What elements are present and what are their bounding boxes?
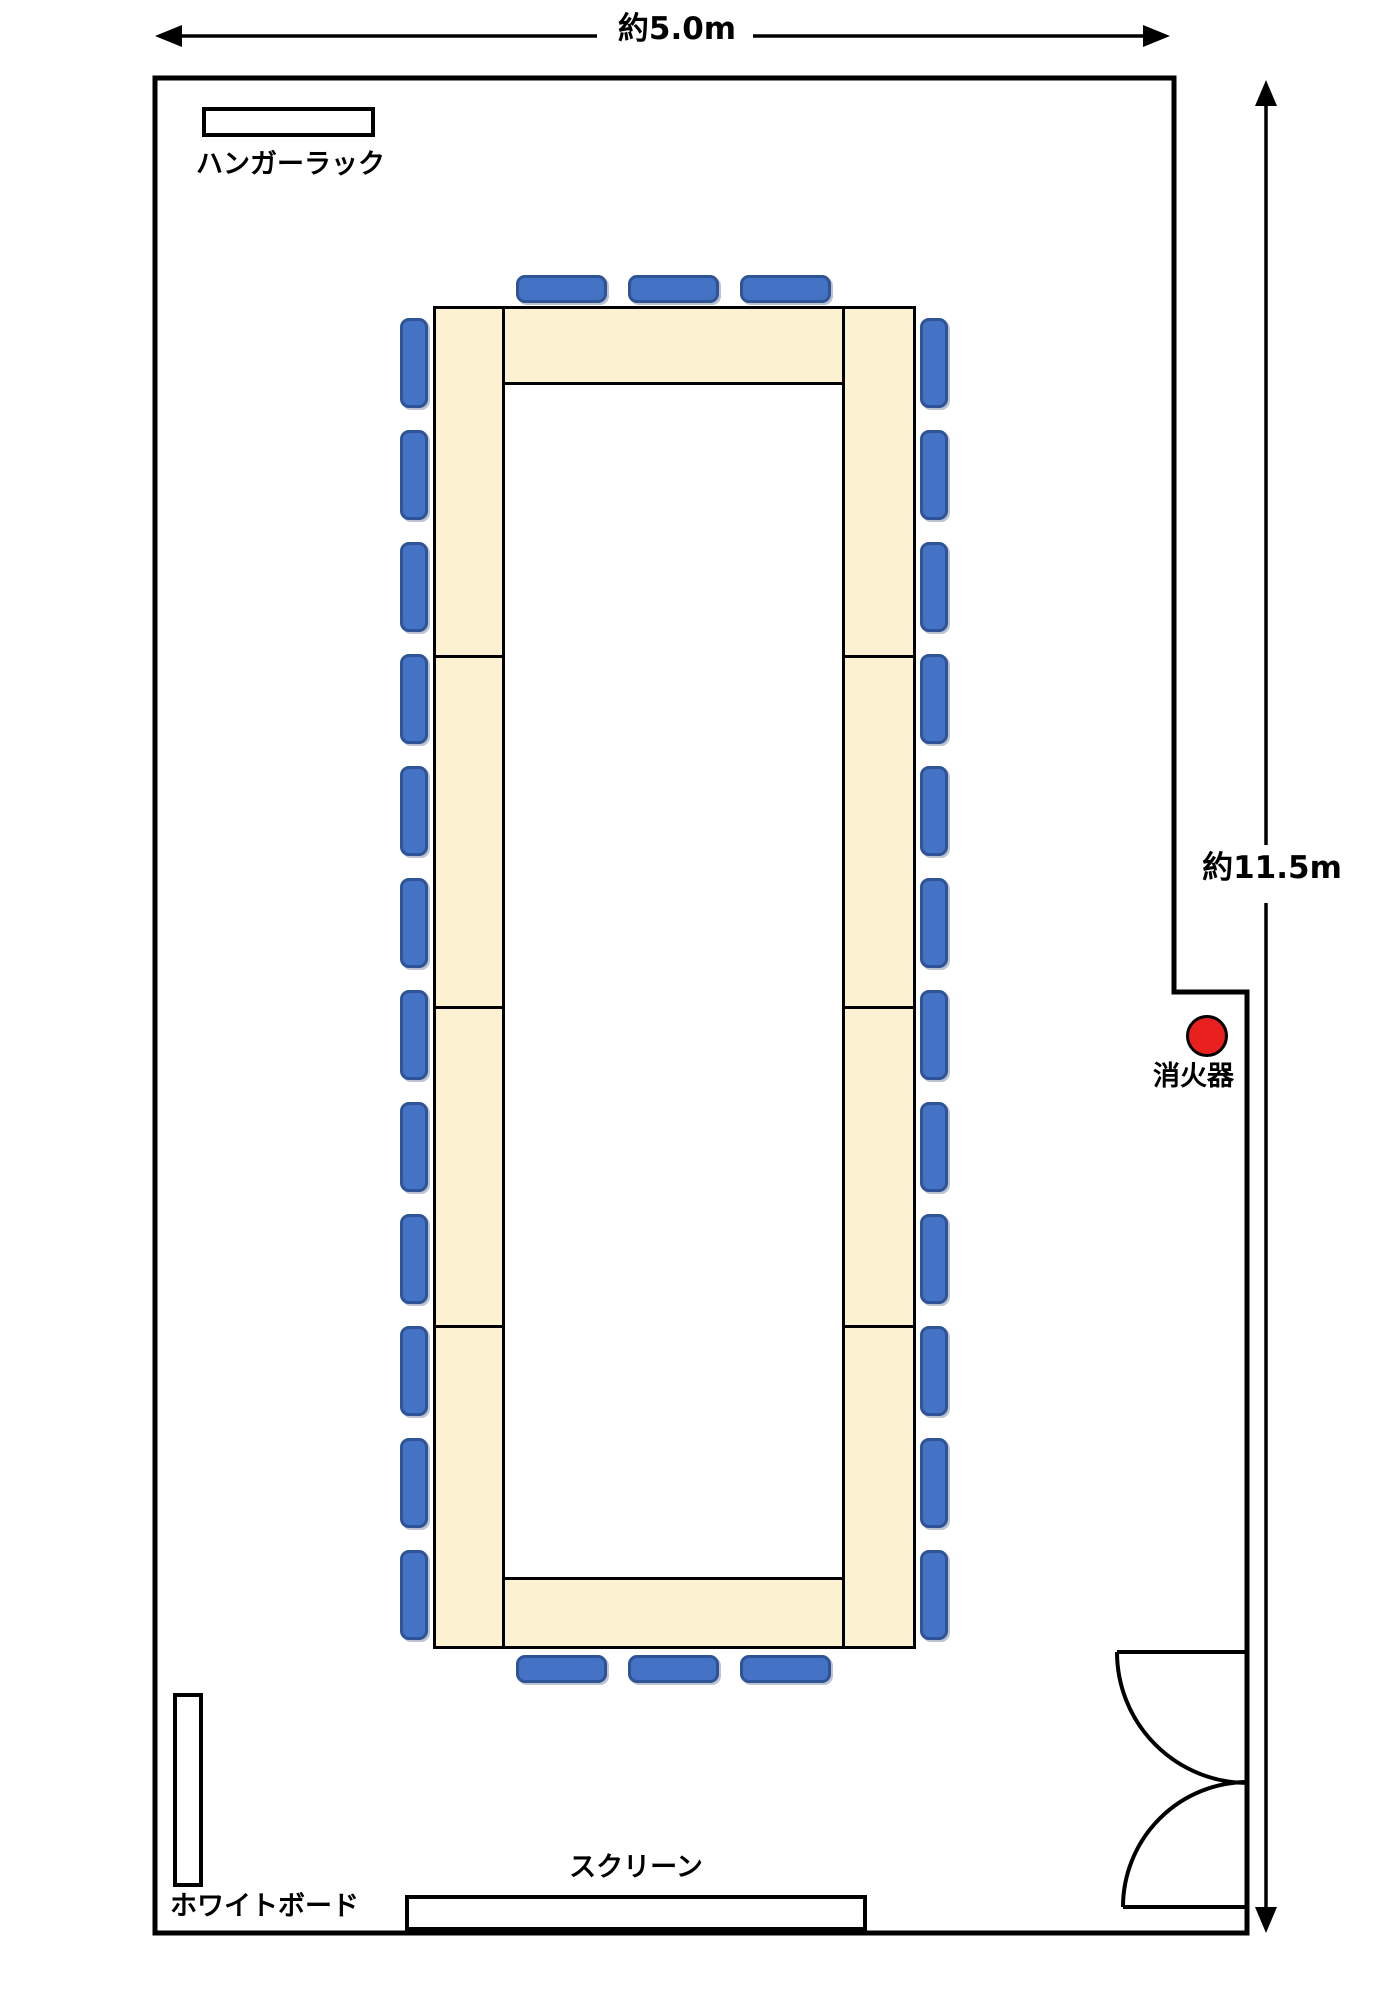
chair [740,1655,831,1683]
whiteboard-label: ホワイトボード [170,1892,359,1922]
table-divider [436,655,502,658]
table-divider [436,1006,502,1009]
chair [920,654,948,744]
table-divider [845,1006,913,1009]
hanger-rack [202,107,375,137]
table-column-right [842,306,916,1649]
table-divider [845,1325,913,1328]
chair [920,1550,948,1640]
table-divider [436,1325,502,1328]
chair [920,878,948,968]
chair [400,990,428,1080]
screen [405,1895,867,1931]
chair [920,766,948,856]
chair [628,275,719,303]
chair [400,1102,428,1192]
width-dimension-label: 約5.0m [618,12,736,46]
fire-extinguisher-label: 消火器 [1153,1062,1234,1092]
chair [920,1326,948,1416]
chair [400,318,428,408]
door-swing [1117,1652,1248,1907]
screen-label: スクリーン [569,1853,703,1883]
chair [628,1655,719,1683]
chair [400,1438,428,1528]
table-divider [845,655,913,658]
height-dimension-arrow [1255,80,1277,1933]
table-row-bottom [502,1577,845,1649]
chair [920,1214,948,1304]
chair [400,1550,428,1640]
table-row-top [502,306,845,385]
chair [400,766,428,856]
chair [400,1326,428,1416]
chair [400,430,428,520]
chair [920,1438,948,1528]
table-column-left [433,306,505,1649]
chair [920,430,948,520]
chair [740,275,831,303]
whiteboard [173,1693,203,1887]
chair [400,878,428,968]
chair [920,990,948,1080]
chair [516,1655,607,1683]
chair [400,542,428,632]
height-dimension-label: 約11.5m [1202,851,1342,885]
chair [920,318,948,408]
chair [400,1214,428,1304]
chair [920,1102,948,1192]
chair [400,654,428,744]
fire-extinguisher-marker [1186,1015,1228,1057]
floor-plan: 約5.0m 約11.5m ハンガーラック ホワイトボード スクリーン 消火器 [0,0,1384,2000]
chair [516,275,607,303]
hanger-rack-label: ハンガーラック [196,150,385,180]
chair [920,542,948,632]
